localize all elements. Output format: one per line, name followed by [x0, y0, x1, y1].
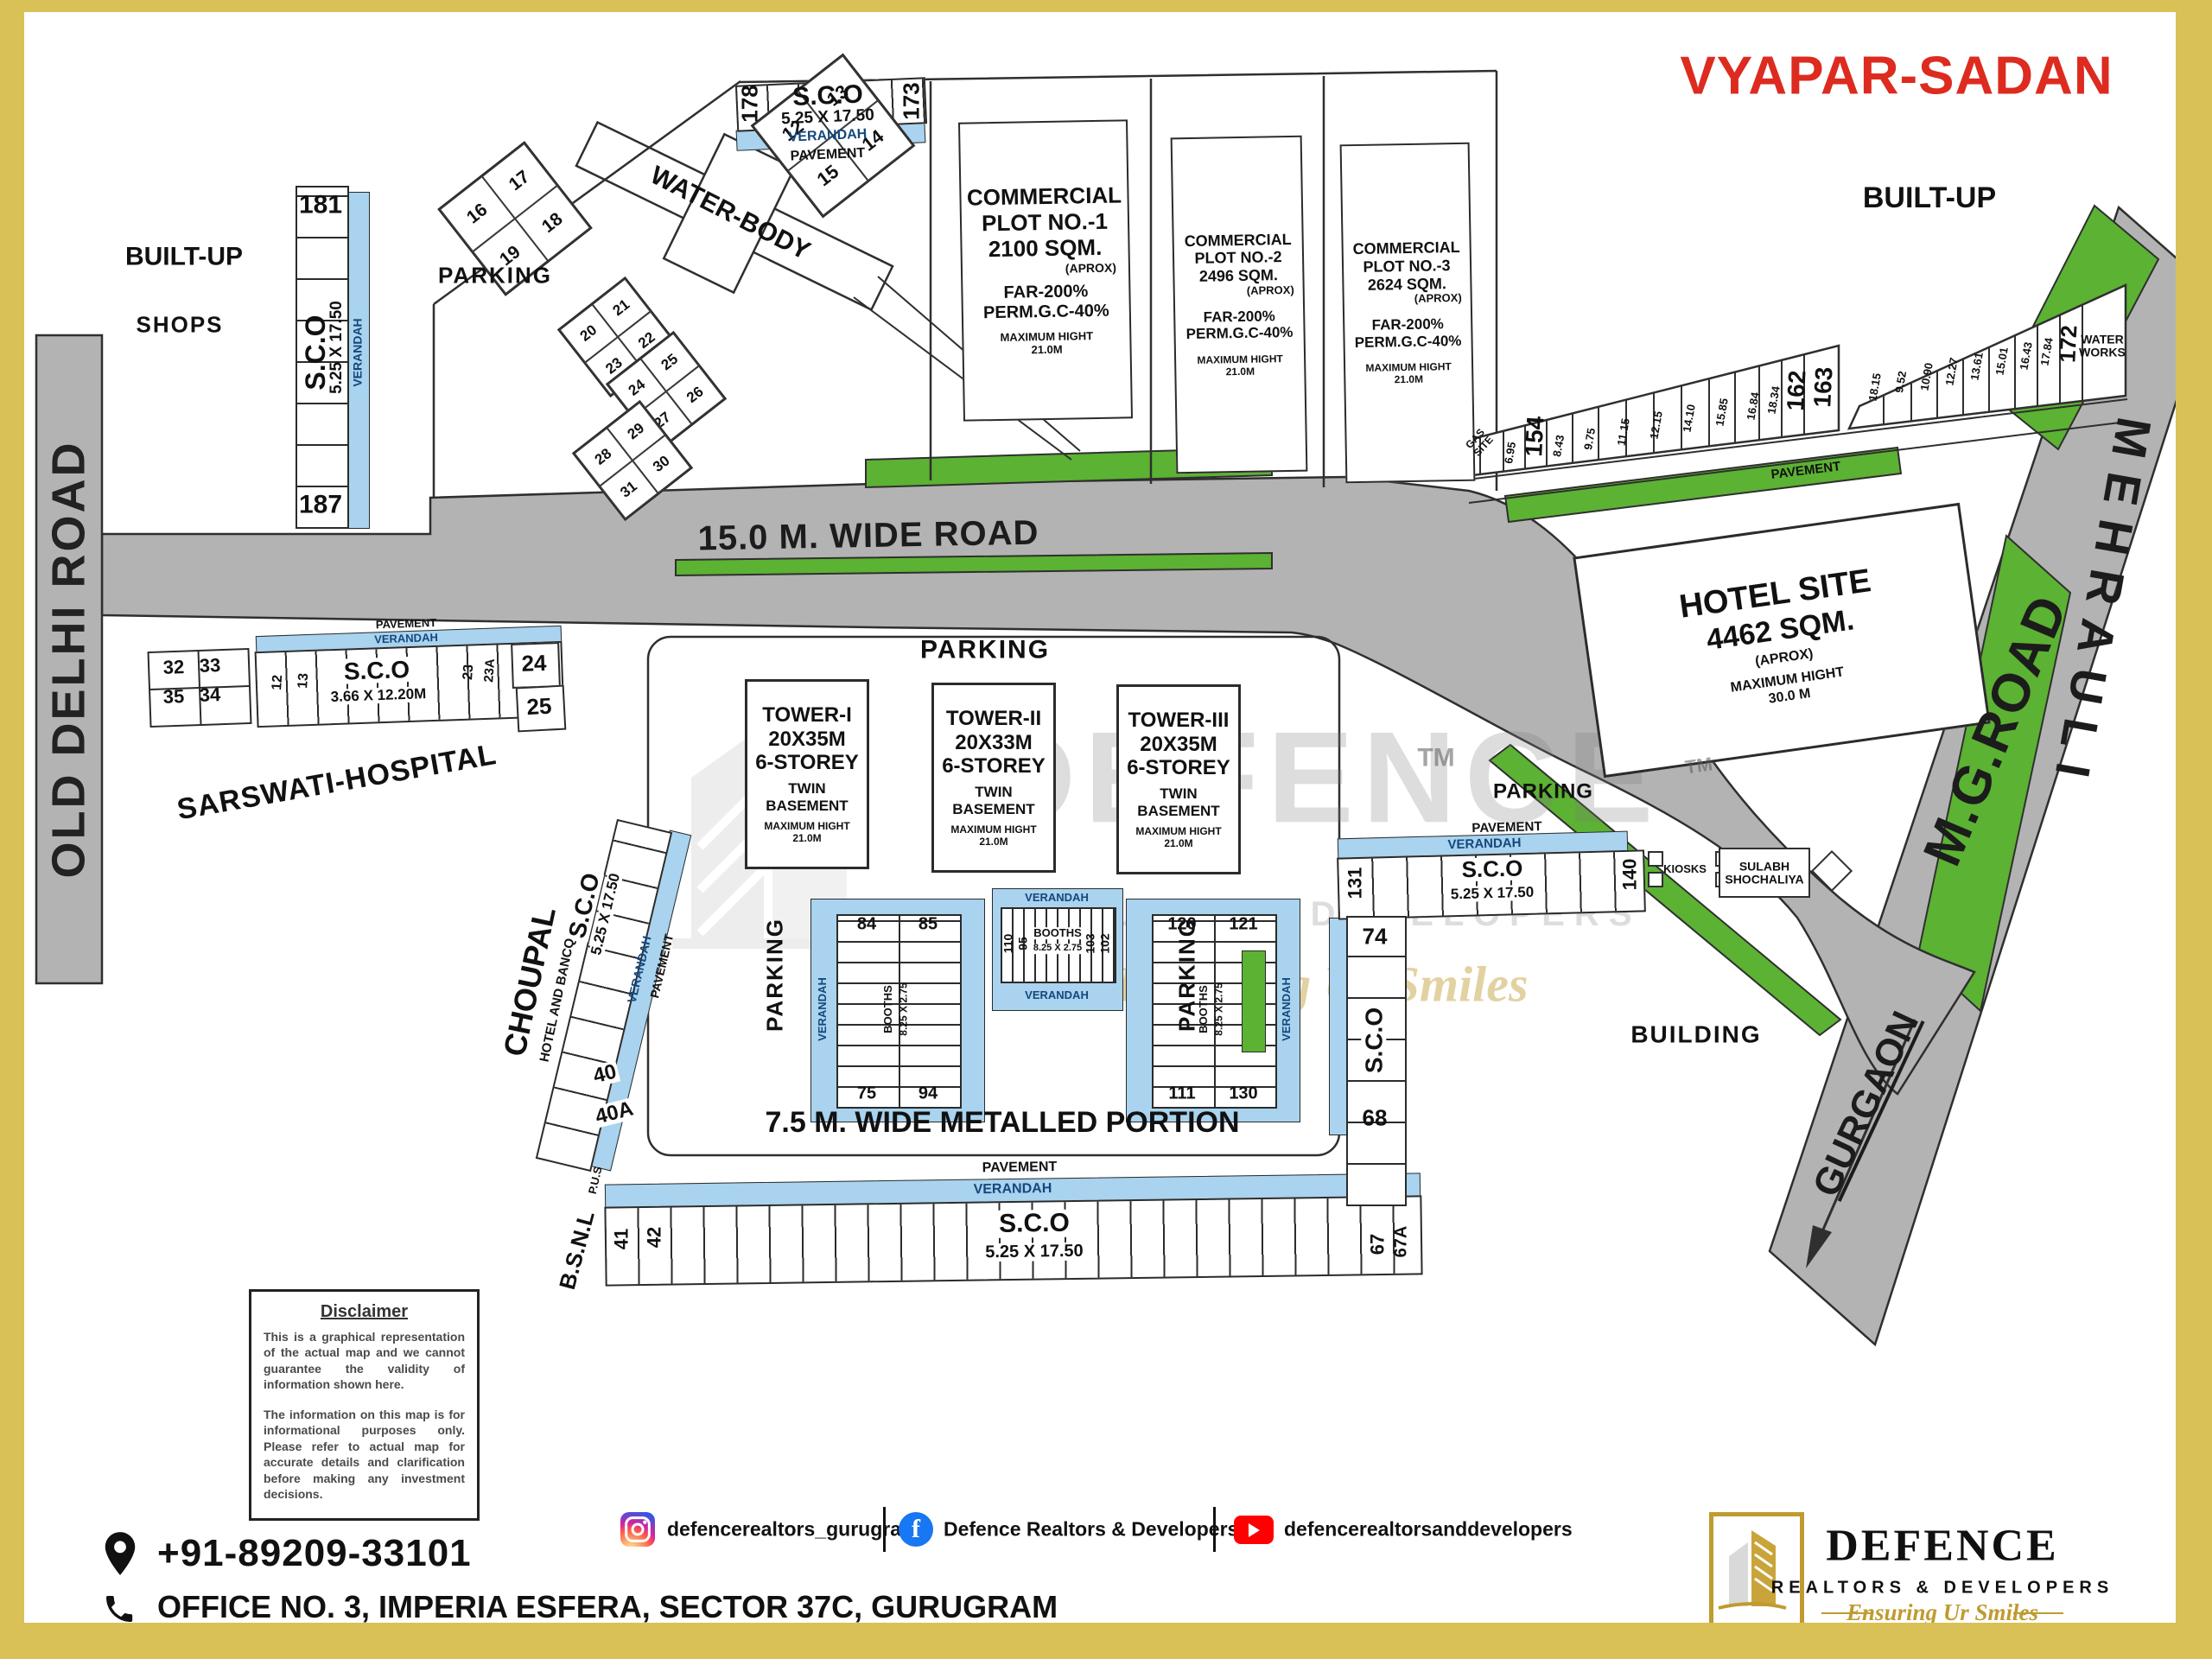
tower-size: 20X35M	[768, 728, 845, 752]
plot-number: 33	[199, 655, 220, 676]
plot-number: 74	[1363, 925, 1388, 948]
bottom-sco-label: S.C.O	[995, 1210, 1073, 1238]
booth-number: 110	[1002, 934, 1015, 954]
booth-mid-verandah-top: VERANDAH	[1025, 892, 1089, 904]
plot-far: FAR-200%	[1204, 308, 1275, 326]
plot-name: PLOT NO.-2	[1194, 248, 1281, 267]
booth-number: 111	[1168, 1085, 1195, 1103]
tm-mark: TM	[1417, 744, 1454, 772]
plot-number: 23	[461, 664, 477, 681]
booth-number: 85	[918, 916, 938, 934]
footer-facebook: Defence Realtors & Developers	[944, 1518, 1238, 1541]
wide-road-label: 15.0 M. WIDE ROAD	[697, 515, 1039, 557]
booth-mid-verandah-bottom: VERANDAH	[1025, 989, 1089, 1001]
right-row-pavement-label: PAVEMENT	[1471, 820, 1542, 836]
tower-storey: 6-STOREY	[942, 754, 1046, 779]
building-label: BUILDING	[1630, 1021, 1761, 1046]
booth-left-verandah: VERANDAH	[817, 977, 829, 1041]
plot-number: 25	[526, 695, 552, 720]
right-row-verandah-label: VERANDAH	[1447, 836, 1521, 852]
footer-logo-tagline: Ensuring Ur Smiles	[1847, 1600, 2038, 1624]
built-up-right-label: BUILT-UP	[1863, 183, 1996, 214]
plot-number: 13	[296, 673, 312, 690]
booths-label: BOOTHS	[1032, 927, 1084, 939]
right-col-verandah-strip	[1329, 918, 1348, 1135]
plot-height: 21.0M	[1395, 374, 1424, 386]
commercial-plot-3: COMMERCIAL PLOT NO.-3 2624 SQM. (APROX) …	[1340, 143, 1476, 484]
plot-number: 34	[199, 684, 220, 705]
page-title: VYAPAR-SADAN	[1680, 48, 2113, 104]
tm-mark-hotel: TM	[1684, 753, 1714, 777]
booth-number: 84	[857, 916, 876, 934]
bottom-verandah-label: VERANDAH	[974, 1182, 1052, 1198]
hotel-aprox: (APROX)	[1754, 646, 1814, 671]
footer-divider	[883, 1507, 886, 1552]
tower-max-height: MAXIMUM HIGHT	[1135, 826, 1221, 838]
tower-basement: BASEMENT	[766, 798, 848, 815]
parking-top-label: PARKING	[438, 264, 552, 287]
metalled-road-label: 7.5 M. WIDE METALLED PORTION	[765, 1108, 1239, 1139]
plot-height: 21.0M	[1031, 344, 1062, 358]
footer-youtube: defencerealtorsanddevelopers	[1284, 1518, 1573, 1541]
tower-basement: TWIN	[975, 784, 1012, 801]
plot-height: 21.0M	[1226, 365, 1255, 378]
tower-name: TOWER-III	[1128, 709, 1230, 733]
sulabh-label: SULABH SHOCHALIYA	[1719, 860, 1809, 885]
logo-tagline-dash	[2013, 1612, 2063, 1614]
defence-logo-icon	[1709, 1512, 1804, 1628]
disclaimer-text: The information on this map is for infor…	[264, 1407, 465, 1503]
parking-mid-label: PARKING	[920, 636, 1050, 664]
disclaimer-title: Disclaimer	[264, 1302, 465, 1322]
tower-size: 20X33M	[955, 731, 1032, 755]
shops-label: SHOPS	[136, 313, 223, 336]
booths-size: 8.25 X 2.75	[1032, 944, 1084, 954]
footer-phone: +91-89209-33101	[157, 1532, 472, 1575]
plot-aprox: (APROX)	[1414, 292, 1462, 306]
tower-name: TOWER-II	[946, 707, 1041, 731]
footer-divider	[1213, 1507, 1216, 1552]
parking-green-bar	[1242, 950, 1266, 1052]
plot-name: PLOT NO.-3	[1363, 257, 1450, 276]
commercial-plot-2: COMMERCIAL PLOT NO.-2 2496 SQM. (APROX) …	[1171, 136, 1308, 474]
tower-height: 21.0M	[792, 833, 821, 845]
plot-number: 68	[1363, 1106, 1388, 1129]
built-up-left-label: BUILT-UP	[125, 243, 243, 270]
booth-right-verandah: VERANDAH	[1281, 977, 1293, 1041]
booth-number: 102	[1099, 933, 1112, 953]
tower-basement: BASEMENT	[952, 801, 1034, 818]
booth-number: 120	[1167, 916, 1196, 934]
plot-aprox: (APROX)	[1065, 260, 1116, 275]
plot-number: 67A	[1393, 1226, 1411, 1258]
plot-name: COMMERCIAL	[1353, 238, 1460, 258]
location-pin-icon	[100, 1529, 140, 1578]
disclaimer-text: This is a graphical representation of th…	[264, 1329, 465, 1393]
strip-cell: 162	[1783, 370, 1810, 411]
commercial-plot-1: COMMERCIAL PLOT NO.-1 2100 SQM. (APROX) …	[958, 119, 1133, 421]
frame-bottom	[0, 1623, 2212, 1659]
disclaimer-box: Disclaimer This is a graphical represent…	[249, 1289, 480, 1521]
phone-icon	[102, 1592, 137, 1626]
facebook-icon: f	[899, 1512, 933, 1547]
booth-number: 130	[1229, 1085, 1257, 1103]
tower-name: TOWER-I	[762, 703, 852, 728]
plot-number: 42	[644, 1227, 664, 1248]
plot-number: 12	[270, 675, 286, 691]
plot-number: 41	[611, 1229, 631, 1249]
sco-181-bottom: 187	[299, 491, 342, 518]
plot-area: 2100 SQM.	[988, 235, 1103, 263]
plot-number: 131	[1344, 868, 1364, 899]
watermark-name: DEFENCE	[982, 709, 1662, 846]
plot-gc: PERM.G.C-40%	[1355, 333, 1462, 352]
footer-address: OFFICE NO. 3, IMPERIA ESFERA, SECTOR 37C…	[157, 1589, 1058, 1625]
sco-181-verandah-label: VERANDAH	[352, 318, 365, 386]
tower-2-box: TOWER-II 20X33M 6-STOREY TWIN BASEMENT M…	[931, 683, 1056, 873]
hospital-sco-label: S.C.O	[340, 657, 412, 684]
old-delhi-road-label: OLD DELHI ROAD	[45, 441, 94, 879]
plot-number: 67	[1367, 1234, 1387, 1255]
bottom-sco-size: 5.25 X 17.50	[982, 1243, 1087, 1262]
strip-cell: 172	[2056, 325, 2082, 364]
booths-label: BOOTHS	[1198, 985, 1210, 1033]
plot-name: COMMERCIAL	[1185, 231, 1292, 251]
plot-number: 35	[162, 686, 184, 707]
tower-max-height: MAXIMUM HIGHT	[764, 821, 849, 833]
parking-left-vertical-label: PARKING	[763, 918, 786, 1032]
frame-right	[2176, 0, 2212, 1659]
tower-height: 21.0M	[1164, 838, 1192, 850]
plot-number: 140	[1619, 859, 1639, 891]
booth-number: 75	[857, 1085, 876, 1103]
kiosk-box	[1649, 852, 1662, 866]
tower-basement: BASEMENT	[1137, 803, 1219, 820]
instagram-icon	[620, 1512, 655, 1547]
footer-instagram: defencerealtors_gurugram	[667, 1518, 918, 1541]
bottom-pavement-label: PAVEMENT	[982, 1160, 1058, 1176]
sco-top-right-num: 173	[899, 82, 923, 119]
sco-181-top: 181	[299, 191, 342, 219]
frame-left	[0, 0, 24, 1659]
plot-number: 24	[521, 652, 547, 676]
strip-cell: 163	[1809, 366, 1837, 408]
sco-181-title: S.C.O	[302, 315, 331, 390]
tower-max-height: MAXIMUM HIGHT	[950, 824, 1036, 836]
sco-181-size: 5.25 X 17.50	[328, 301, 346, 394]
plot-far: FAR-200%	[1372, 315, 1444, 334]
tower-basement: TWIN	[788, 780, 825, 798]
footer-logo-name: DEFENCE	[1826, 1523, 2058, 1571]
right-row-sco-size: 5.25 X 17.50	[1448, 885, 1537, 903]
tower-basement: TWIN	[1160, 785, 1197, 803]
tower-size: 20X35M	[1140, 733, 1217, 757]
frame-top	[0, 0, 2212, 12]
hospital-verandah-label: VERANDAH	[374, 632, 438, 645]
booths-label: BOOTHS	[882, 985, 894, 1033]
plot-gc: PERM.G.C-40%	[1186, 324, 1294, 343]
site-plan-canvas: DEFENCE R E A L T O R S & D E V E L O P …	[0, 0, 2212, 1659]
hospital-pavement-label: PAVEMENT	[376, 617, 437, 631]
plot-far: FAR-200%	[1003, 282, 1088, 303]
tower-storey: 6-STOREY	[755, 751, 859, 775]
booth-number: 95	[1017, 937, 1030, 950]
booths-size: 8.25 X 2.75	[1214, 982, 1225, 1035]
plot-number: 23A	[482, 658, 498, 683]
kiosks-label: KIOSKS	[1663, 863, 1707, 875]
sco-top-left-num: 178	[738, 85, 761, 122]
strip-cell: 154	[1521, 416, 1548, 457]
plot-gc: PERM.G.C-40%	[983, 302, 1109, 324]
plot-area: 2496 SQM.	[1199, 266, 1278, 285]
footer-logo-sub: REALTORS & DEVELOPERS	[1771, 1580, 2113, 1598]
booth-number: 94	[918, 1085, 938, 1103]
booth-number: 121	[1229, 916, 1257, 934]
tower-storey: 6-STOREY	[1127, 756, 1230, 780]
booths-size: 8.25 X 2.75	[899, 982, 910, 1035]
tower-3-box: TOWER-III 20X35M 6-STOREY TWIN BASEMENT …	[1116, 684, 1241, 874]
plot-name: COMMERCIAL	[967, 183, 1122, 212]
plot-number: 32	[162, 657, 184, 677]
youtube-icon	[1234, 1516, 1274, 1544]
right-row-sco-label: S.C.O	[1459, 856, 1525, 881]
kiosk-box	[1649, 873, 1662, 887]
tower-1-box: TOWER-I 20X35M 6-STOREY TWIN BASEMENT MA…	[745, 679, 869, 869]
plot-name: PLOT NO.-1	[982, 209, 1108, 237]
parking-hotel-label: PARKING	[1493, 780, 1593, 802]
tower-height: 21.0M	[979, 836, 1007, 849]
right-col-sco-label: S.C.O	[1361, 1005, 1386, 1076]
parking-right-vertical-label: PARKING	[1175, 918, 1198, 1032]
plot-aprox: (APROX)	[1247, 284, 1294, 298]
booth-number: 103	[1084, 933, 1097, 953]
